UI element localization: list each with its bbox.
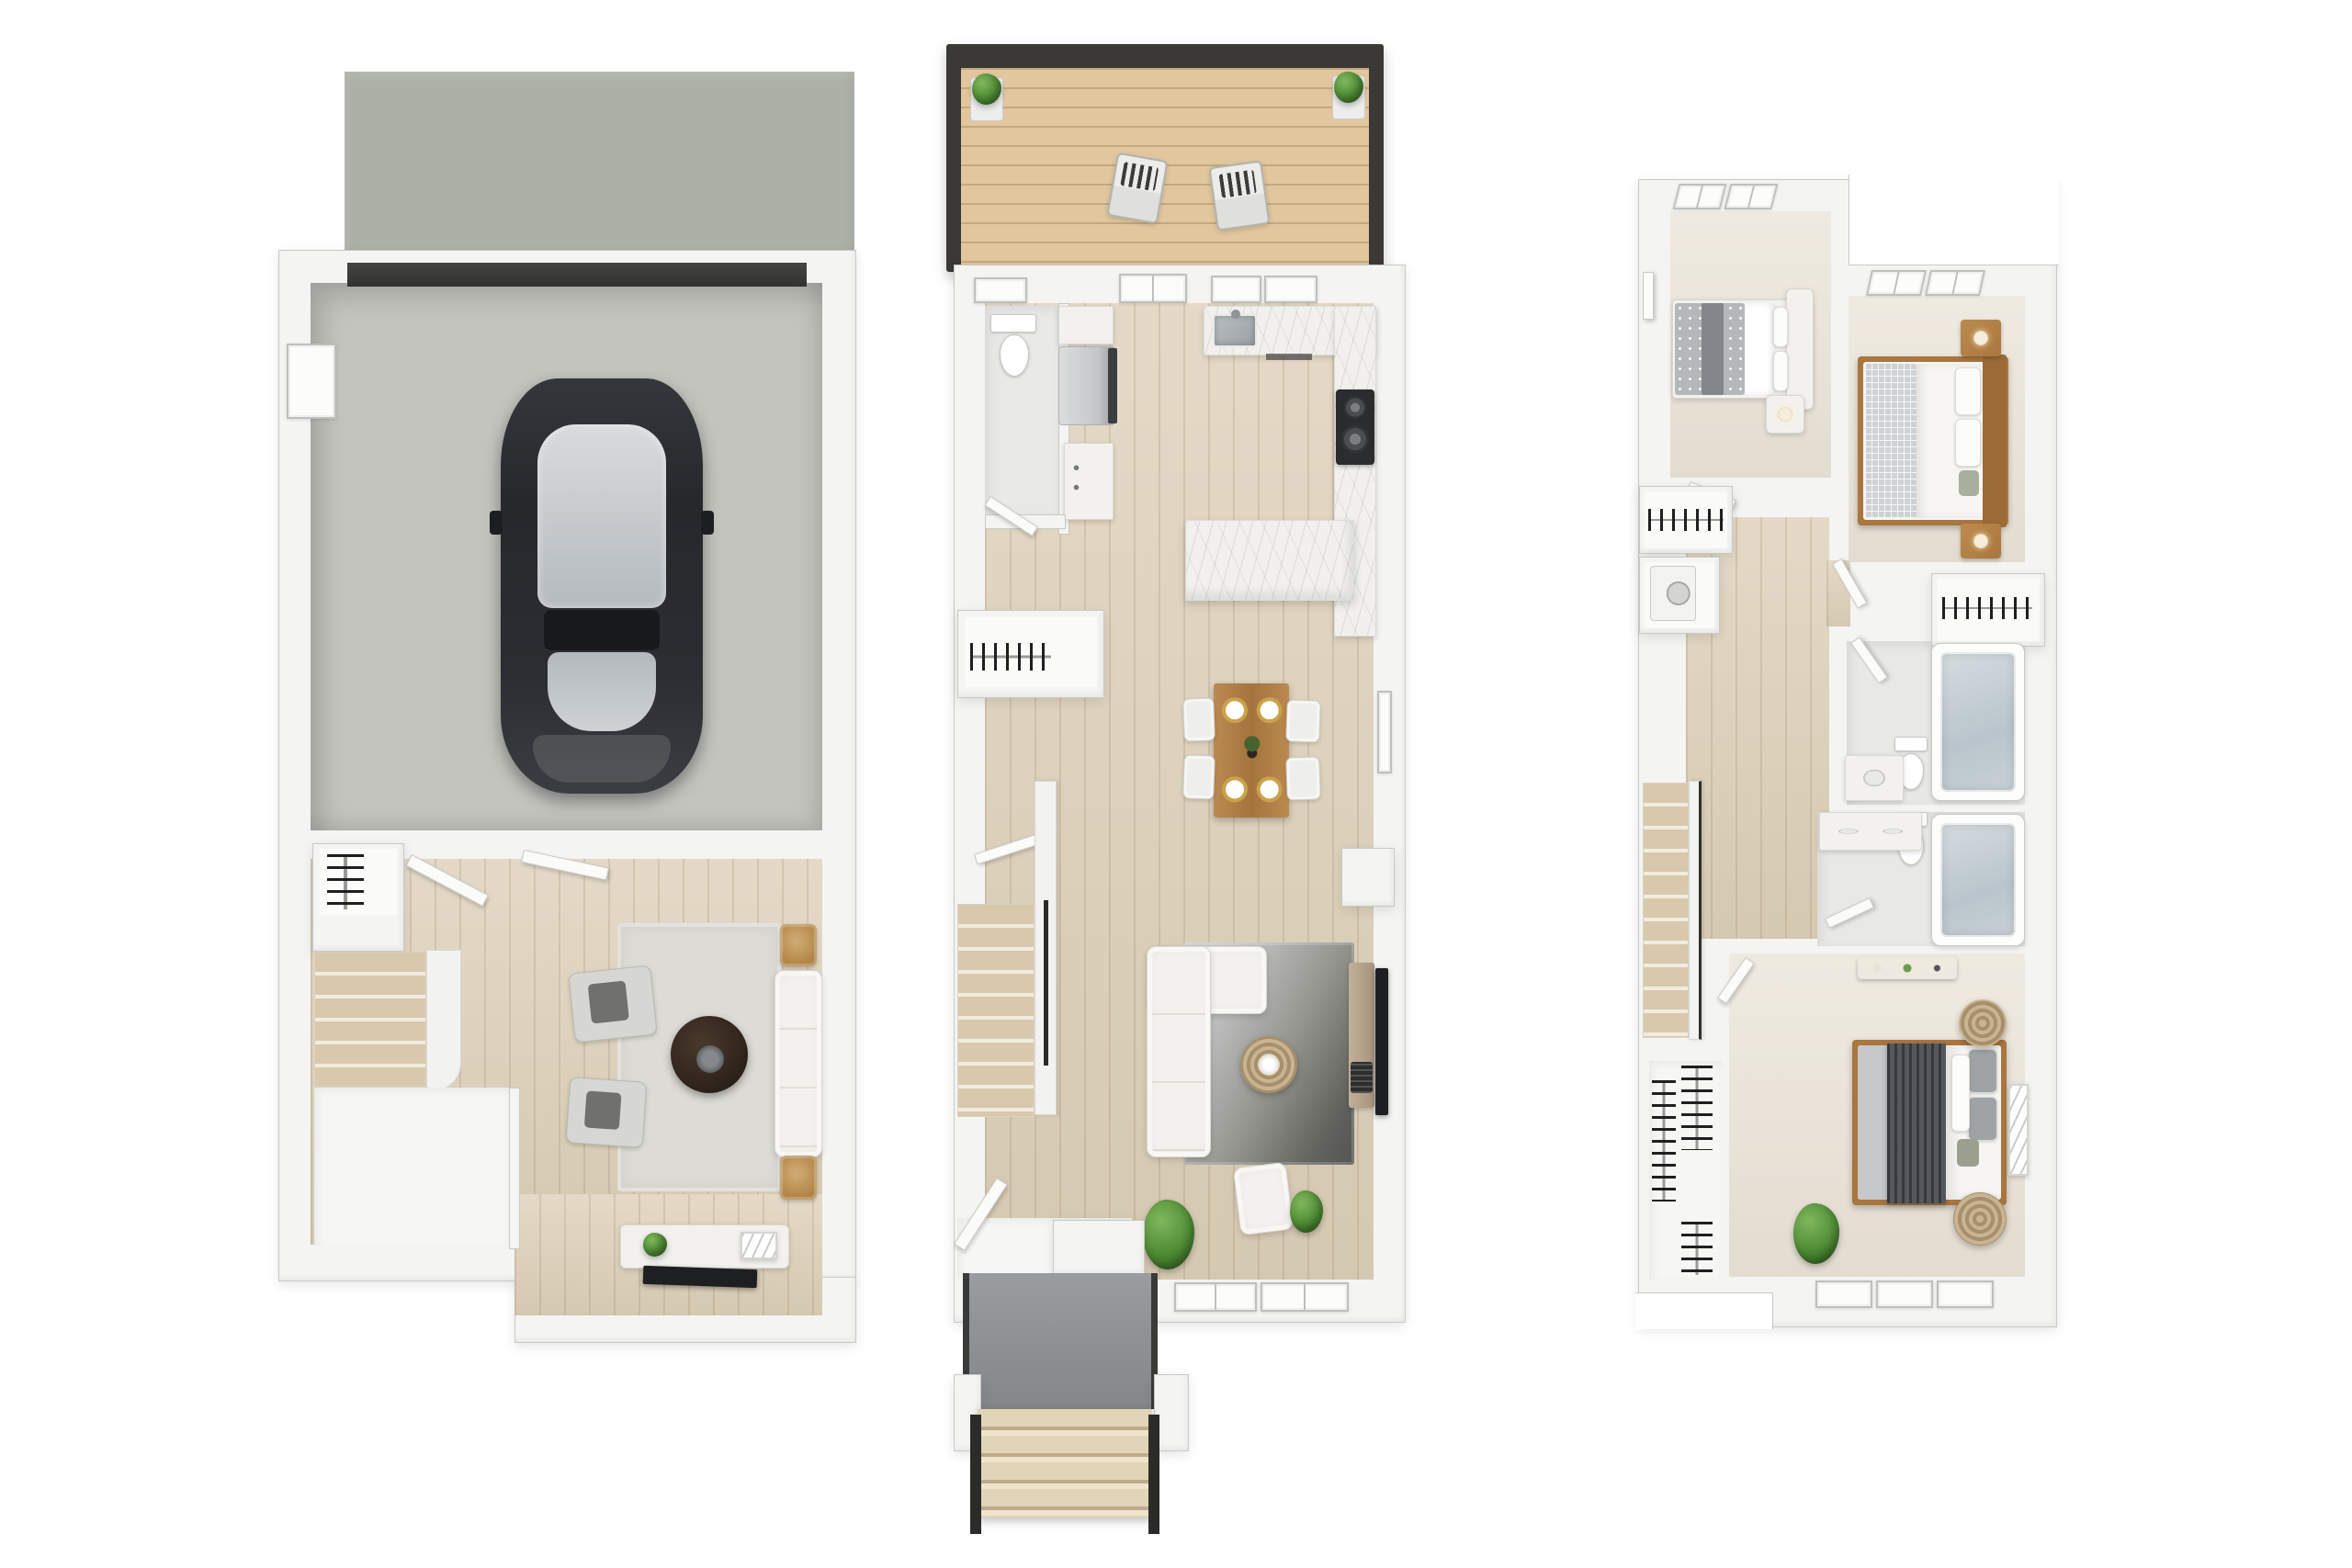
walkin-hangers-icon: [1681, 1066, 1713, 1150]
ensuite-bathtub-basin: [1940, 823, 2016, 937]
console-art: [741, 1232, 777, 1259]
bedroom3-quilt: [1865, 364, 1917, 518]
washer-icon: [1650, 566, 1696, 621]
step-railing: [1148, 1415, 1159, 1534]
wall-bump: [1341, 848, 1395, 907]
pantry-cabinet: [1058, 306, 1114, 344]
primary-window: [1876, 1280, 1933, 1308]
pillow-icon: [1773, 351, 1788, 391]
bedroom3-nightstand: [1961, 524, 2001, 558]
main-staircase: [957, 904, 1035, 1117]
bedroom2-nightstand: [1766, 395, 1804, 434]
exterior-steps: [978, 1409, 1152, 1517]
rec-room-sofa: [775, 970, 822, 1157]
dining-window: [1377, 691, 1392, 773]
entry-walkway: [963, 1273, 1158, 1409]
cooktop: [1336, 389, 1374, 465]
living-coffee-table: [1240, 1036, 1297, 1093]
upper-staircase: [1643, 783, 1689, 1038]
dining-chair: [1182, 754, 1216, 799]
kitchen-window: [1264, 276, 1317, 303]
coat-closet-hangers-icon: [970, 643, 1051, 671]
door-leaf: [1643, 272, 1654, 320]
side-table: [1959, 999, 2007, 1047]
refrigerator: [1058, 346, 1115, 425]
dining-chair: [1182, 697, 1216, 741]
kitchen-island: [1185, 520, 1354, 601]
bedroom2-duvet: [1745, 303, 1776, 395]
bathroom-vanity: [1845, 755, 1904, 801]
upper-stair-banister: [1689, 781, 1702, 1040]
footprint-notch: [1635, 1292, 1773, 1329]
deck-door: [1119, 274, 1187, 303]
wall-tv: [1375, 968, 1388, 1115]
dishwasher: [1266, 354, 1312, 360]
stair-stringer: [426, 950, 461, 1091]
dining-table: [1214, 683, 1289, 818]
bedroom2-throw: [1702, 303, 1724, 395]
dresser: [1858, 957, 1957, 979]
speaker-icon: [1351, 1062, 1373, 1093]
floorplan-canvas: [0, 0, 2352, 1568]
closet-hangers-icon: [327, 854, 364, 909]
linen-closet-hangers-icon: [1942, 597, 2032, 619]
bedroom3-headboard: [1983, 355, 2007, 527]
car-mirror-right-icon: [701, 511, 714, 535]
end-table: [780, 924, 817, 966]
primary-window: [1815, 1280, 1872, 1308]
walkin-hangers-icon: [1652, 1080, 1676, 1201]
entry-nook-floor: [314, 1088, 509, 1246]
bedroom3-window: [1925, 270, 1985, 296]
dining-chair: [1285, 756, 1321, 800]
step-railing: [970, 1415, 981, 1534]
pillow-icon: [1968, 1097, 1997, 1141]
car-rear-window: [548, 652, 656, 731]
end-table: [780, 1156, 817, 1200]
bedroom3-window: [1866, 270, 1927, 296]
toilet-tank-icon: [990, 314, 1036, 333]
living-window: [1174, 1282, 1257, 1312]
powder-room-window: [974, 277, 1027, 303]
car-tr unk-sheen: [533, 735, 671, 783]
bedroom2-skylight: [1673, 184, 1727, 209]
pillow-icon: [1951, 1055, 1970, 1132]
bathtub-basin: [1940, 652, 2016, 792]
footprint-notch: [1849, 175, 2059, 265]
bedroom3-nightstand: [1961, 320, 2001, 356]
armchair: [566, 1077, 648, 1148]
sectional-sofa: [1147, 946, 1211, 1157]
entry-nook-wall: [509, 1088, 520, 1249]
pillow-icon: [1968, 1049, 1997, 1093]
pillow-icon: [1955, 419, 1981, 467]
powder-vanity: [1064, 443, 1114, 520]
kitchen-sink: [1213, 314, 1257, 347]
garage-window: [287, 344, 336, 419]
car-windshield: [537, 424, 666, 608]
living-window: [1261, 1282, 1349, 1312]
accent-pillow-icon: [1957, 1139, 1979, 1167]
pillow-icon: [1955, 367, 1981, 415]
accent-pillow-icon: [1959, 470, 1979, 496]
driveway-pad: [345, 72, 854, 277]
toilet-tank-icon: [1894, 737, 1928, 751]
car-roof: [544, 610, 660, 650]
coffee-table-decor: [696, 1045, 724, 1073]
living-armchair: [1233, 1162, 1295, 1236]
armchair: [568, 965, 657, 1043]
car-mirror-left-icon: [490, 511, 503, 535]
leaning-artwork: [2008, 1084, 2029, 1176]
entry-closet: [1053, 1220, 1145, 1275]
primary-bed-throw: [1887, 1043, 1946, 1203]
pillow-icon: [1773, 307, 1788, 347]
tv: [643, 1266, 758, 1288]
bedroom2-skylight: [1724, 184, 1779, 209]
hall-closet-hangers-icon: [1648, 509, 1724, 531]
primary-window: [1937, 1280, 1994, 1308]
lounge-chair: [1106, 152, 1168, 225]
basement-staircase: [314, 952, 426, 1088]
refrigerator-side: [1108, 348, 1117, 423]
stair-handrail: [1044, 900, 1048, 1066]
ensuite-double-vanity: [1819, 812, 1922, 851]
side-table: [1953, 1192, 2007, 1246]
walkin-hangers-icon: [1681, 1222, 1713, 1275]
dining-chair: [1285, 699, 1321, 742]
lounge-chair: [1208, 160, 1270, 231]
kitchen-window: [1211, 276, 1261, 303]
bedroom2-headboard: [1786, 288, 1814, 410]
primary-sheet: [1858, 1045, 1887, 1200]
garage-door-opening: [347, 263, 807, 287]
